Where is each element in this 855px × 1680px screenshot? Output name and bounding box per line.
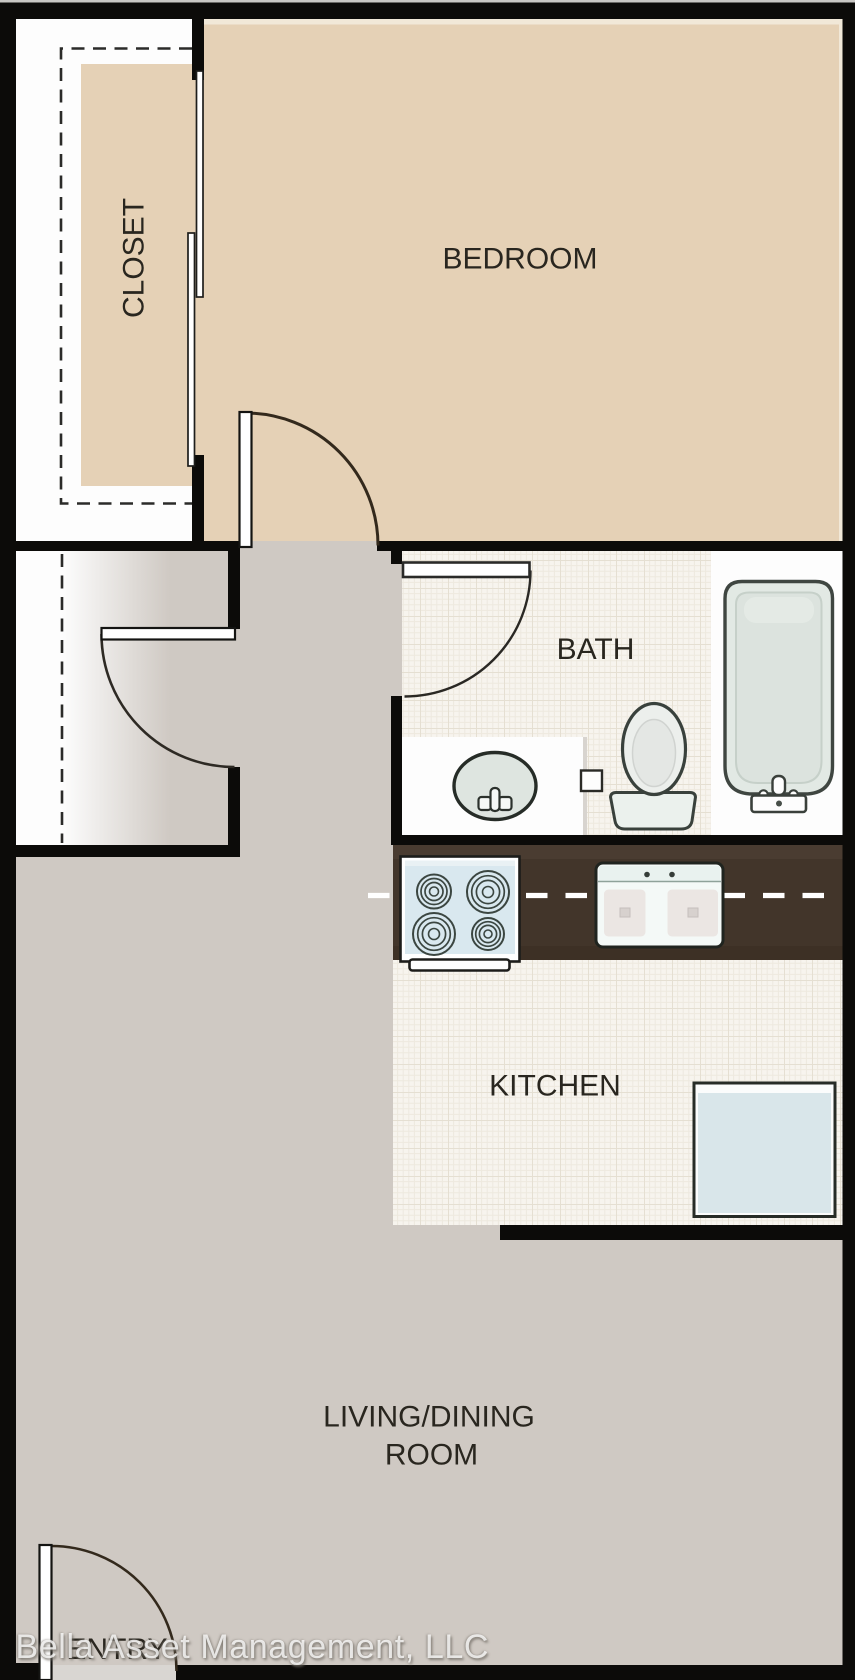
- svg-text:LIVING/DINING: LIVING/DINING: [323, 1401, 535, 1434]
- svg-text:ROOM: ROOM: [385, 1439, 478, 1472]
- svg-text:KITCHEN: KITCHEN: [489, 1069, 621, 1102]
- svg-text:CLOSET: CLOSET: [118, 198, 151, 318]
- svg-text:BATH: BATH: [557, 633, 635, 666]
- svg-text:BEDROOM: BEDROOM: [442, 242, 597, 275]
- svg-text:Bella Asset Management, LLC: Bella Asset Management, LLC: [16, 1628, 490, 1666]
